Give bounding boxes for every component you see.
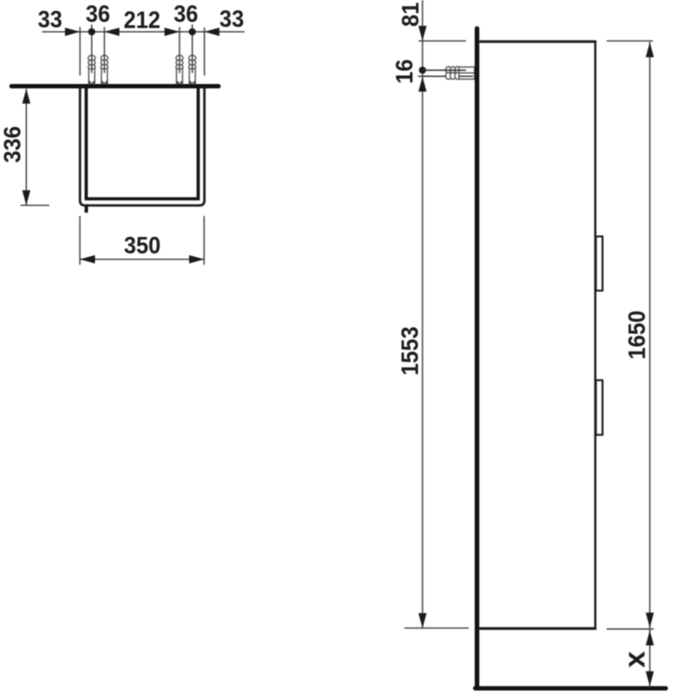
svg-text:36: 36	[86, 1, 111, 28]
svg-text:x: x	[619, 651, 652, 668]
svg-text:16: 16	[392, 59, 419, 84]
svg-text:33: 33	[219, 6, 244, 33]
svg-text:212: 212	[124, 7, 161, 34]
svg-text:36: 36	[174, 1, 199, 28]
svg-text:1650: 1650	[624, 311, 651, 360]
svg-text:1553: 1553	[397, 327, 424, 376]
svg-text:336: 336	[0, 126, 27, 163]
svg-text:33: 33	[38, 7, 63, 34]
svg-text:350: 350	[124, 233, 161, 260]
svg-text:81: 81	[398, 2, 425, 27]
